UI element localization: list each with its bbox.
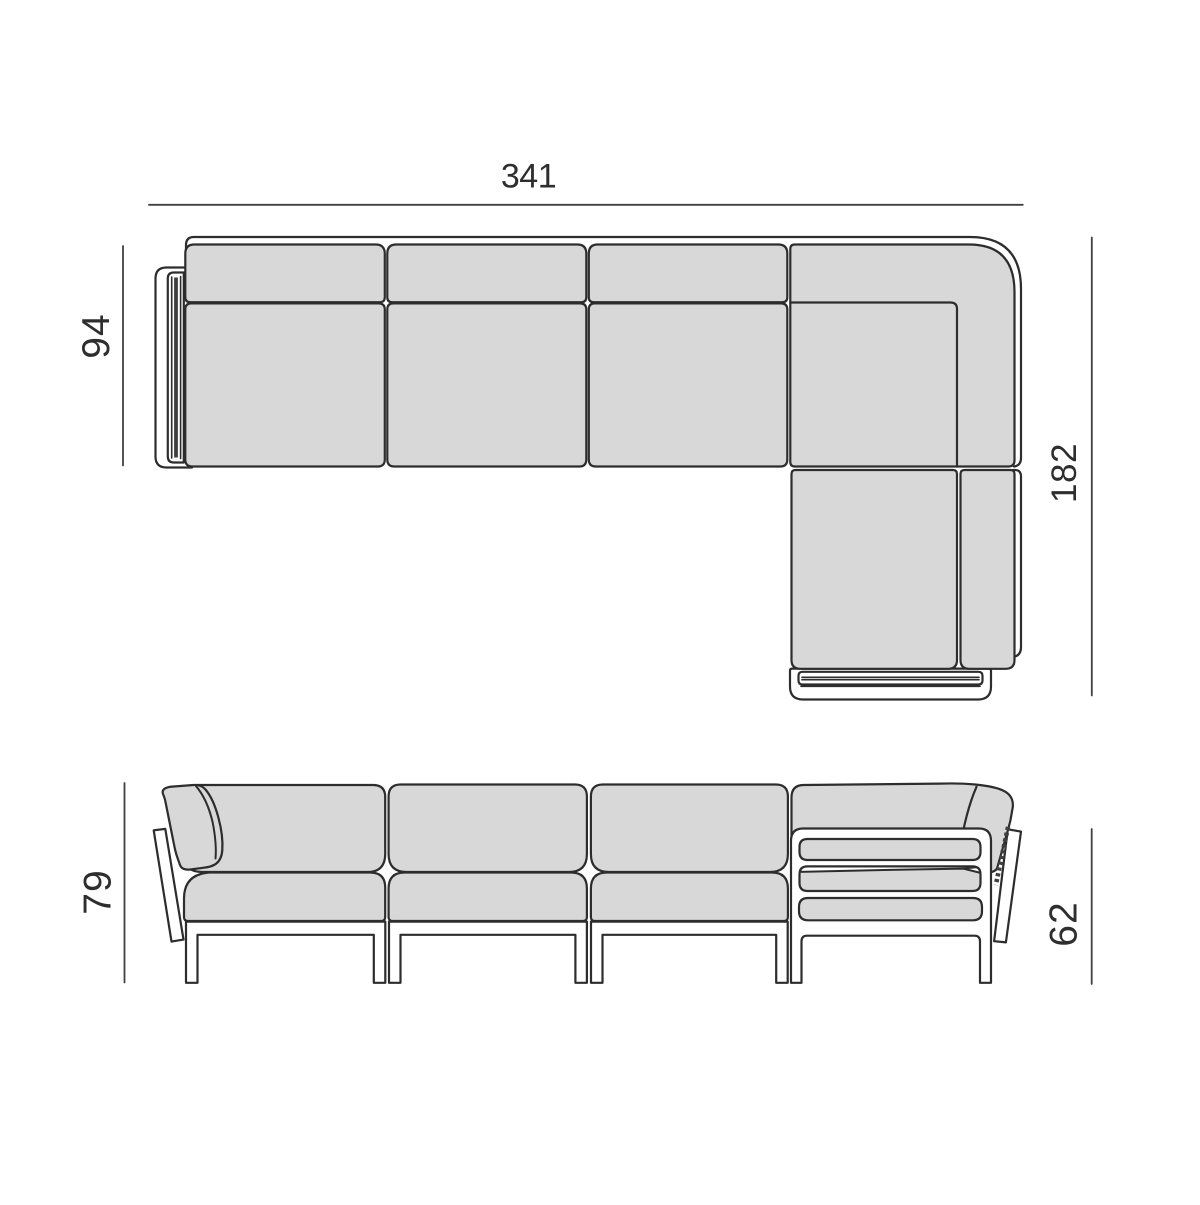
- svg-text:341: 341: [501, 158, 556, 196]
- svg-text:94: 94: [75, 313, 118, 358]
- svg-text:62: 62: [1043, 901, 1086, 946]
- svg-text:182: 182: [1045, 443, 1084, 503]
- svg-text:79: 79: [77, 869, 120, 914]
